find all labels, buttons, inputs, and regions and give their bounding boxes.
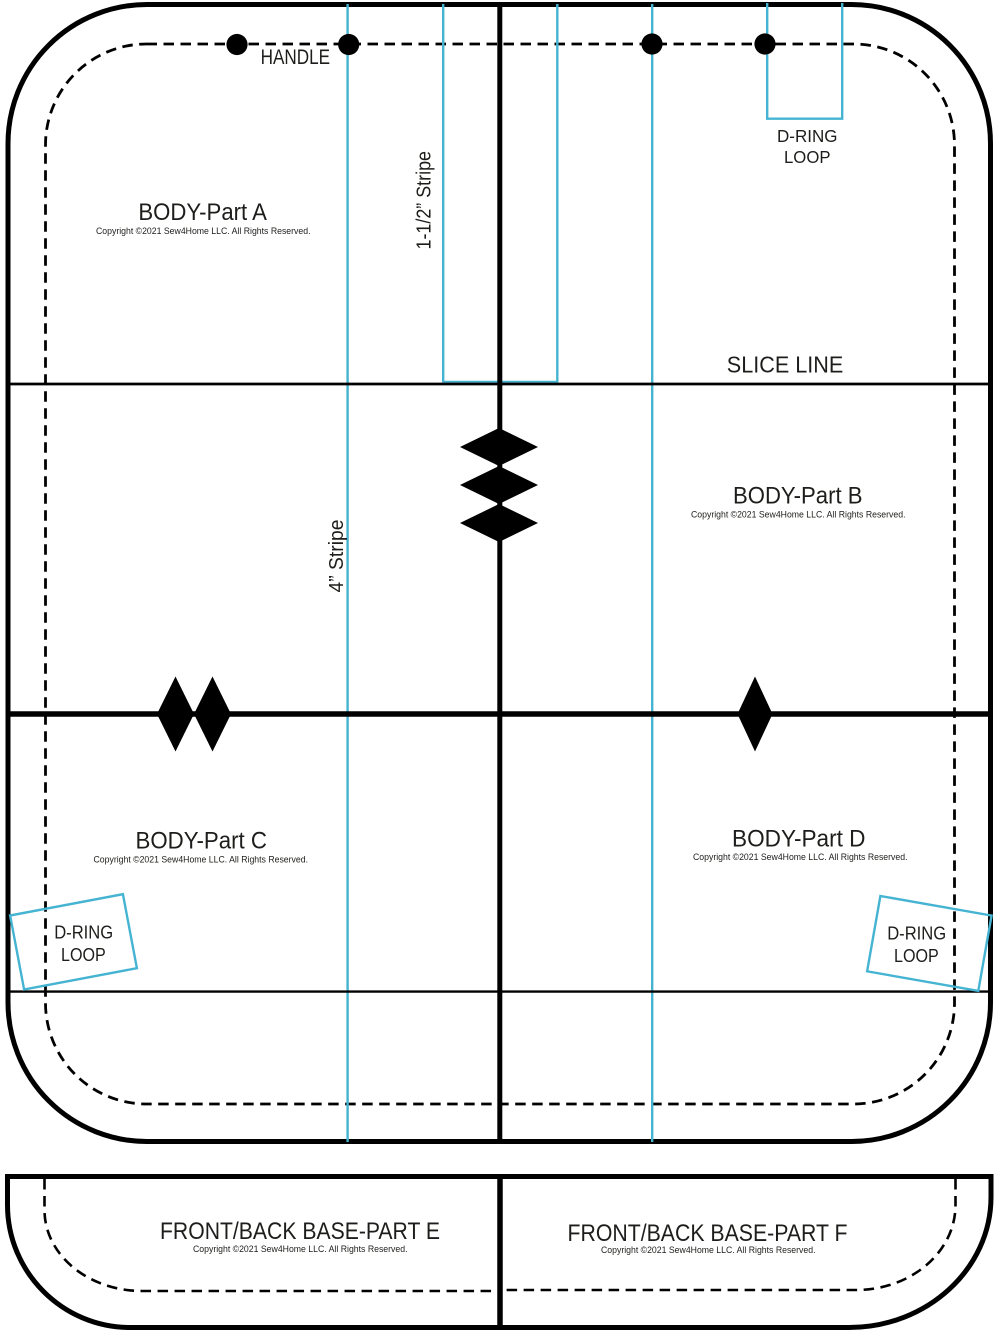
svg-text:D-RING: D-RING bbox=[887, 923, 946, 944]
svg-text:SLICE LINE: SLICE LINE bbox=[727, 352, 844, 378]
svg-text:LOOP: LOOP bbox=[894, 945, 939, 966]
svg-text:D-RING: D-RING bbox=[777, 126, 838, 146]
svg-text:Copyright ©2021 Sew4Home LLC.: Copyright ©2021 Sew4Home LLC. All Rights… bbox=[691, 510, 906, 520]
svg-text:BODY-Part A: BODY-Part A bbox=[138, 199, 267, 226]
svg-text:FRONT/BACK BASE-PART F: FRONT/BACK BASE-PART F bbox=[568, 1220, 848, 1247]
svg-text:BODY-Part D: BODY-Part D bbox=[732, 826, 866, 853]
svg-text:Copyright ©2021 Sew4Home LLC.: Copyright ©2021 Sew4Home LLC. All Rights… bbox=[96, 226, 311, 236]
svg-text:Copyright ©2021 Sew4Home LLC.: Copyright ©2021 Sew4Home LLC. All Rights… bbox=[693, 852, 908, 862]
svg-text:1-1/2” Stripe: 1-1/2” Stripe bbox=[414, 151, 436, 250]
svg-text:Copyright ©2021 Sew4Home LLC.: Copyright ©2021 Sew4Home LLC. All Rights… bbox=[193, 1244, 408, 1254]
svg-text:BODY-Part C: BODY-Part C bbox=[136, 827, 268, 854]
svg-text:Copyright ©2021 Sew4Home LLC.: Copyright ©2021 Sew4Home LLC. All Rights… bbox=[601, 1245, 816, 1255]
svg-text:FRONT/BACK BASE-PART E: FRONT/BACK BASE-PART E bbox=[160, 1218, 440, 1245]
svg-text:Copyright ©2021 Sew4Home LLC.: Copyright ©2021 Sew4Home LLC. All Rights… bbox=[94, 855, 309, 865]
svg-text:BODY-Part B: BODY-Part B bbox=[733, 483, 863, 510]
svg-text:D-RING: D-RING bbox=[54, 922, 113, 943]
svg-text:LOOP: LOOP bbox=[784, 147, 831, 167]
svg-text:LOOP: LOOP bbox=[61, 944, 106, 965]
svg-text:4” Stripe: 4” Stripe bbox=[326, 520, 348, 593]
svg-text:HANDLE: HANDLE bbox=[261, 45, 331, 69]
